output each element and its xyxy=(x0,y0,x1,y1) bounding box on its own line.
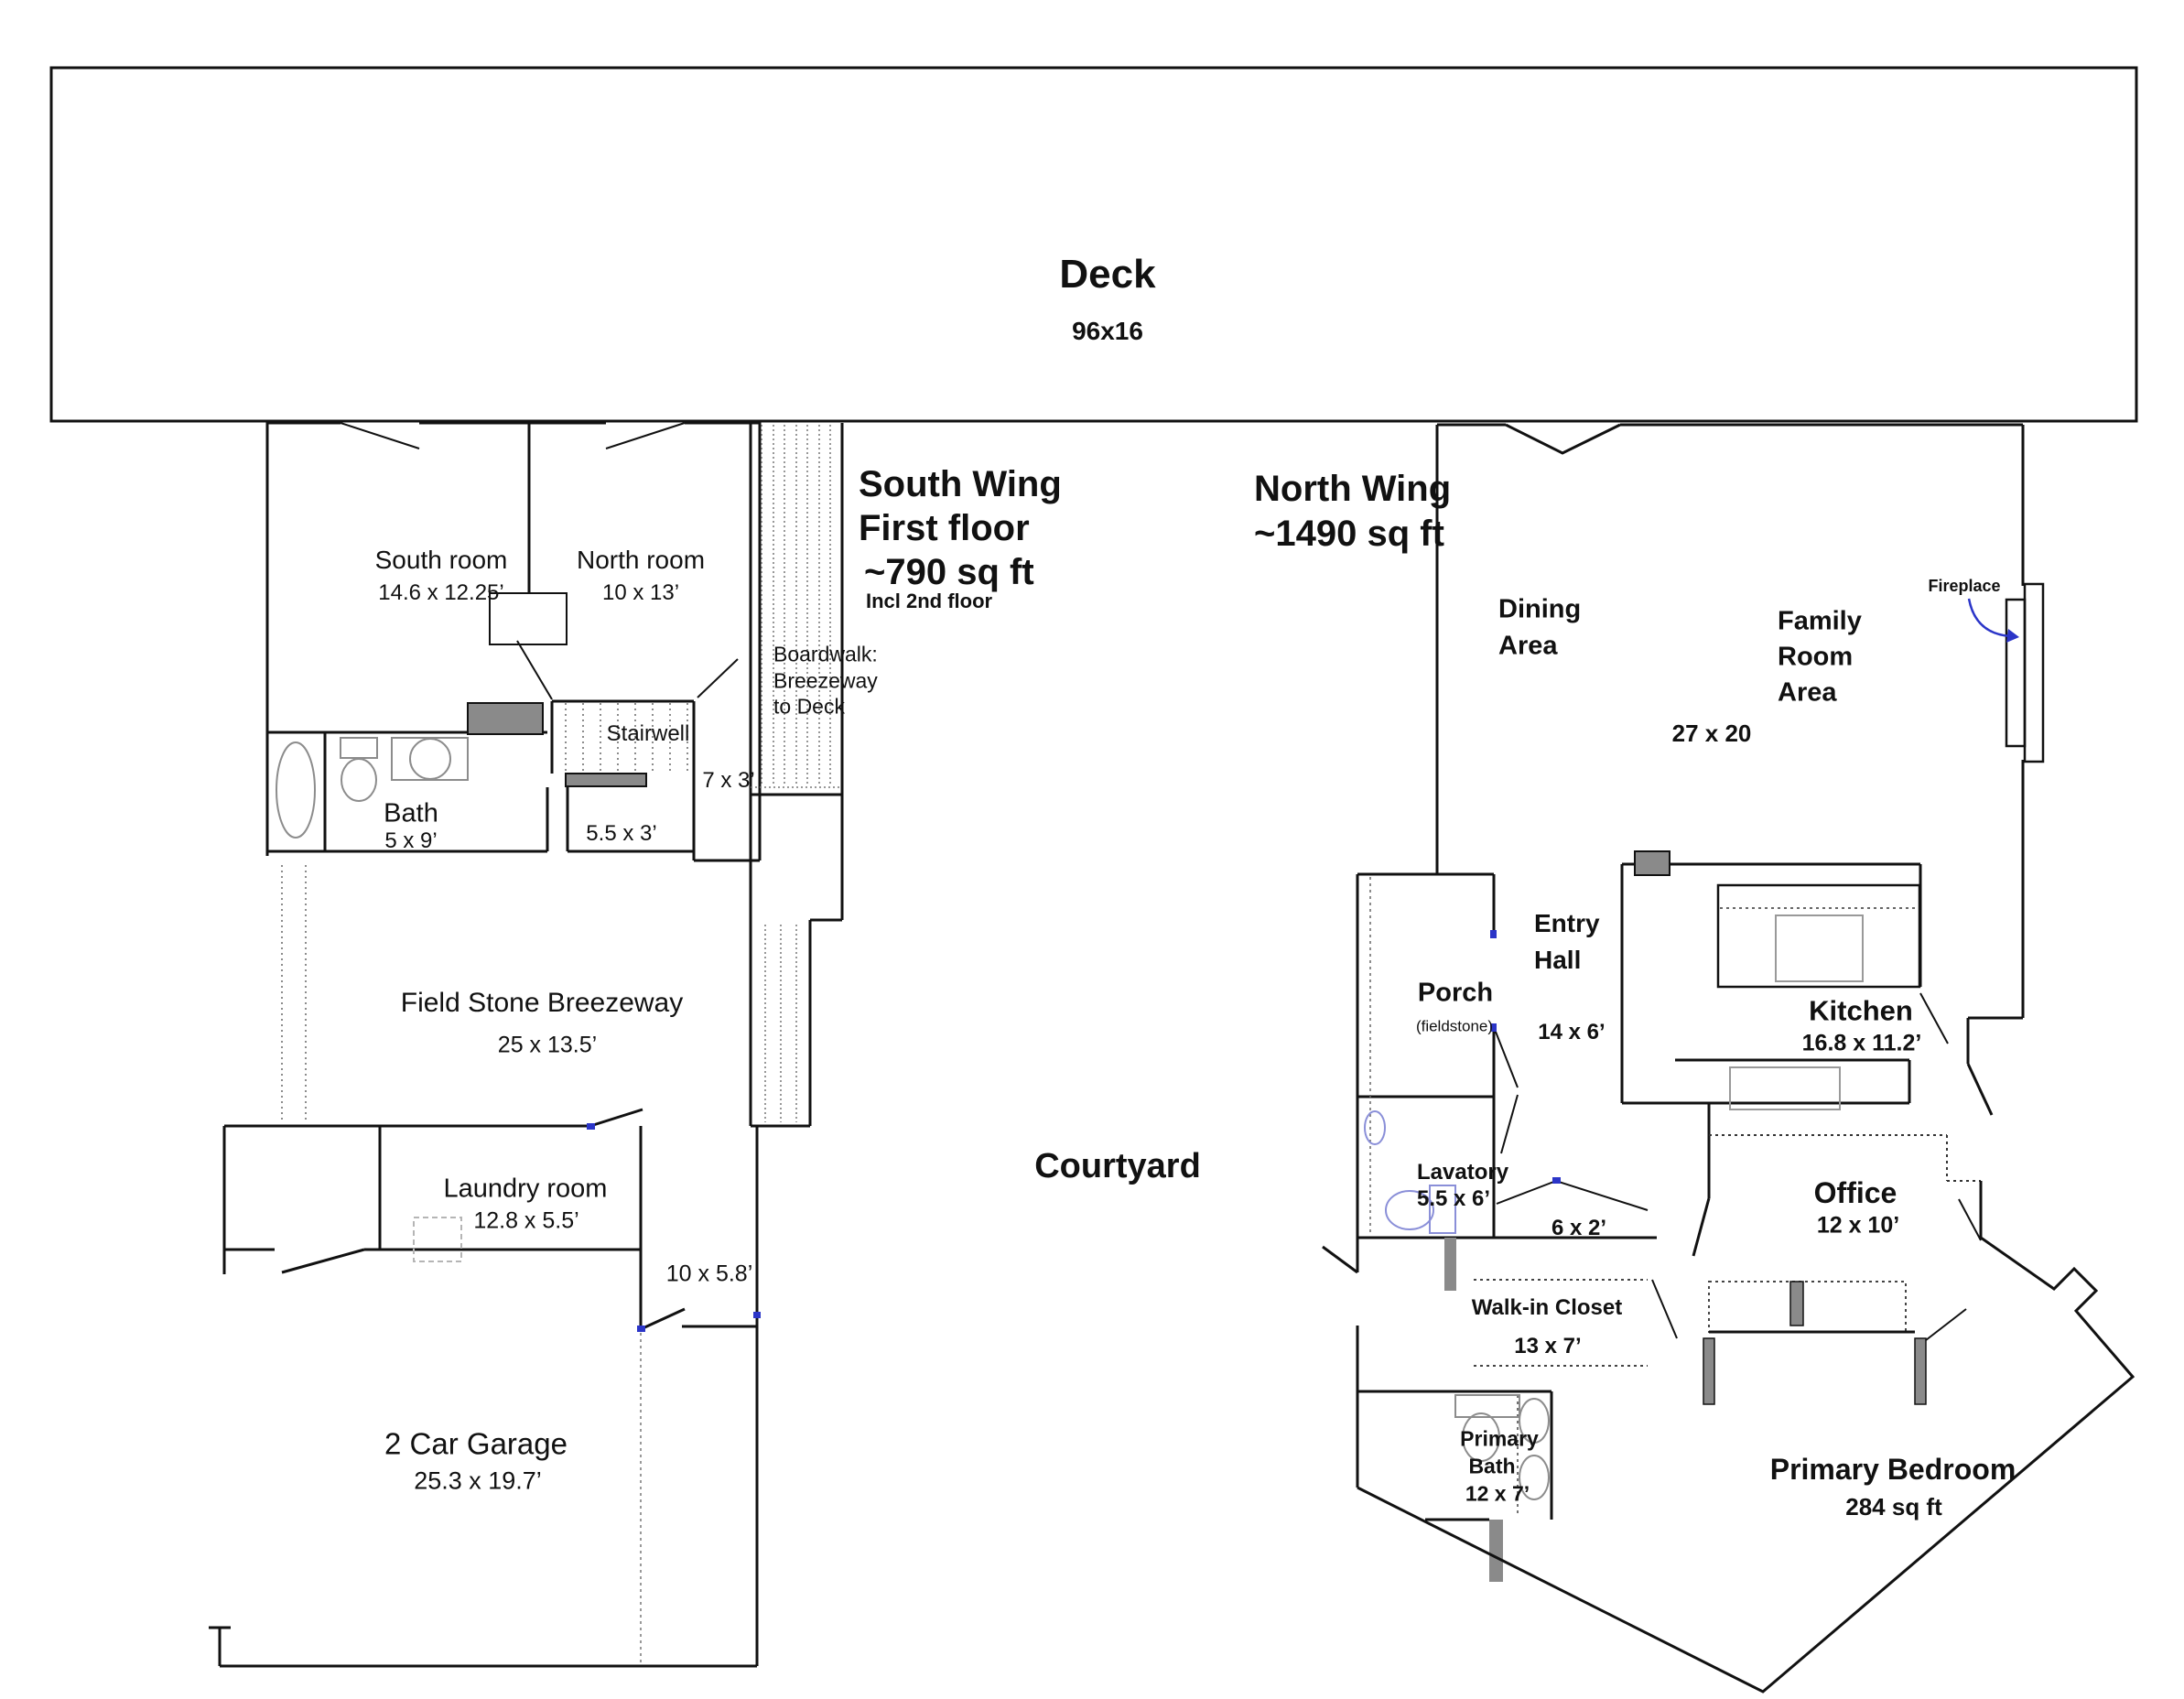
fireplace-arrow xyxy=(1969,599,2010,636)
kitchen-label: Kitchen xyxy=(1809,997,1913,1025)
fireplace-arrowhead xyxy=(2006,629,2019,643)
garage-label: 2 Car Garage xyxy=(384,1429,568,1459)
bath-label: Bath xyxy=(384,801,438,828)
south-wing-note: Incl 2nd floor xyxy=(866,591,992,611)
primary-bath-dims: 12 x 7’ xyxy=(1465,1484,1530,1505)
primary-bedroom-label: Primary Bedroom xyxy=(1770,1455,2016,1484)
bath-fixtures xyxy=(276,738,468,838)
north-wing-walls xyxy=(1437,425,2023,1115)
lavatory-label: Lavatory xyxy=(1417,1162,1508,1184)
entry-hall-dims: 14 x 6’ xyxy=(1538,1022,1605,1044)
office-label: Office xyxy=(1814,1178,1897,1207)
office-dims: 12 x 10’ xyxy=(1817,1215,1899,1238)
deck-label: Deck xyxy=(1059,254,1155,295)
stair-landing-dims: 7 x 3’ xyxy=(702,770,754,792)
boardwalk-label-line3: to Deck xyxy=(773,697,845,718)
entry-hall-label-line1: Entry xyxy=(1534,911,1600,936)
garage-dims: 25.3 x 19.7’ xyxy=(414,1469,542,1494)
north-wing-title: North Wing xyxy=(1254,471,1451,507)
kitchen-dims: 16.8 x 11.2’ xyxy=(1802,1033,1922,1055)
entry-hall-label-line2: Hall xyxy=(1534,947,1581,973)
south-wing-subtitle: First floor xyxy=(859,510,1030,546)
deck-outline xyxy=(51,68,2136,421)
courtyard-label: Courtyard xyxy=(1034,1149,1201,1184)
bed-outline xyxy=(1703,1282,1966,1404)
boardwalk-label-line2: Breezeway xyxy=(773,671,878,692)
south-room-dims: 14.6 x 12.25’ xyxy=(378,582,503,604)
great-room-dims: 27 x 20 xyxy=(1672,721,1752,745)
kitchen-walls-fixtures xyxy=(1622,851,1948,1109)
primary-bath-label-line1: Primary xyxy=(1460,1429,1539,1450)
laundry-label: Laundry room xyxy=(444,1176,608,1203)
family-room-label-line1: Family xyxy=(1778,609,1862,635)
breezeway-dims: 25 x 13.5’ xyxy=(498,1034,597,1057)
porch-label: Porch xyxy=(1418,980,1493,1007)
south-wing-walls xyxy=(267,423,760,860)
floor-plan: Deck 96x16 South Wing First floor ~790 s… xyxy=(0,0,2184,1699)
primary-bedroom-area: 284 sq ft xyxy=(1845,1495,1942,1519)
bath-dims: 5 x 9’ xyxy=(384,830,437,852)
boardwalk-strip xyxy=(751,423,842,1126)
porch-note: (fieldstone) xyxy=(1416,1019,1493,1034)
north-wing-area: ~1490 sq ft xyxy=(1254,515,1444,552)
boardwalk-label-line1: Boardwalk: xyxy=(773,644,878,666)
primary-bath-label-line2: Bath xyxy=(1468,1456,1515,1477)
lavatory-dims: 5.5 x 6’ xyxy=(1417,1188,1490,1210)
fireplace-shape xyxy=(2006,584,2043,762)
passage-dims: 6 x 2’ xyxy=(1552,1217,1606,1239)
fireplace-label: Fireplace xyxy=(1928,578,2000,594)
south-wing-area: ~790 sq ft xyxy=(864,554,1034,590)
dining-area-label-line2: Area xyxy=(1498,633,1558,660)
dining-area-label-line1: Dining xyxy=(1498,597,1581,623)
family-room-label-line2: Room xyxy=(1778,644,1853,671)
stairwell-dims: 5.5 x 3’ xyxy=(586,823,656,845)
stairwell-label: Stairwell xyxy=(607,723,690,745)
walk-in-closet-label: Walk-in Closet xyxy=(1472,1297,1622,1319)
walk-in-closet-dims: 13 x 7’ xyxy=(1514,1336,1581,1358)
family-room-label-line3: Area xyxy=(1778,680,1837,707)
laundry-dims: 12.8 x 5.5’ xyxy=(473,1210,578,1233)
south-wing-title: South Wing xyxy=(859,466,1062,503)
deck-dims: 96x16 xyxy=(1072,319,1143,344)
breezeway-label: Field Stone Breezeway xyxy=(401,990,684,1017)
north-room-dims: 10 x 13’ xyxy=(602,582,679,604)
south-room-label: South room xyxy=(375,547,508,573)
north-room-label: North room xyxy=(577,547,705,573)
garage-hall-dims: 10 x 5.8’ xyxy=(666,1263,753,1286)
